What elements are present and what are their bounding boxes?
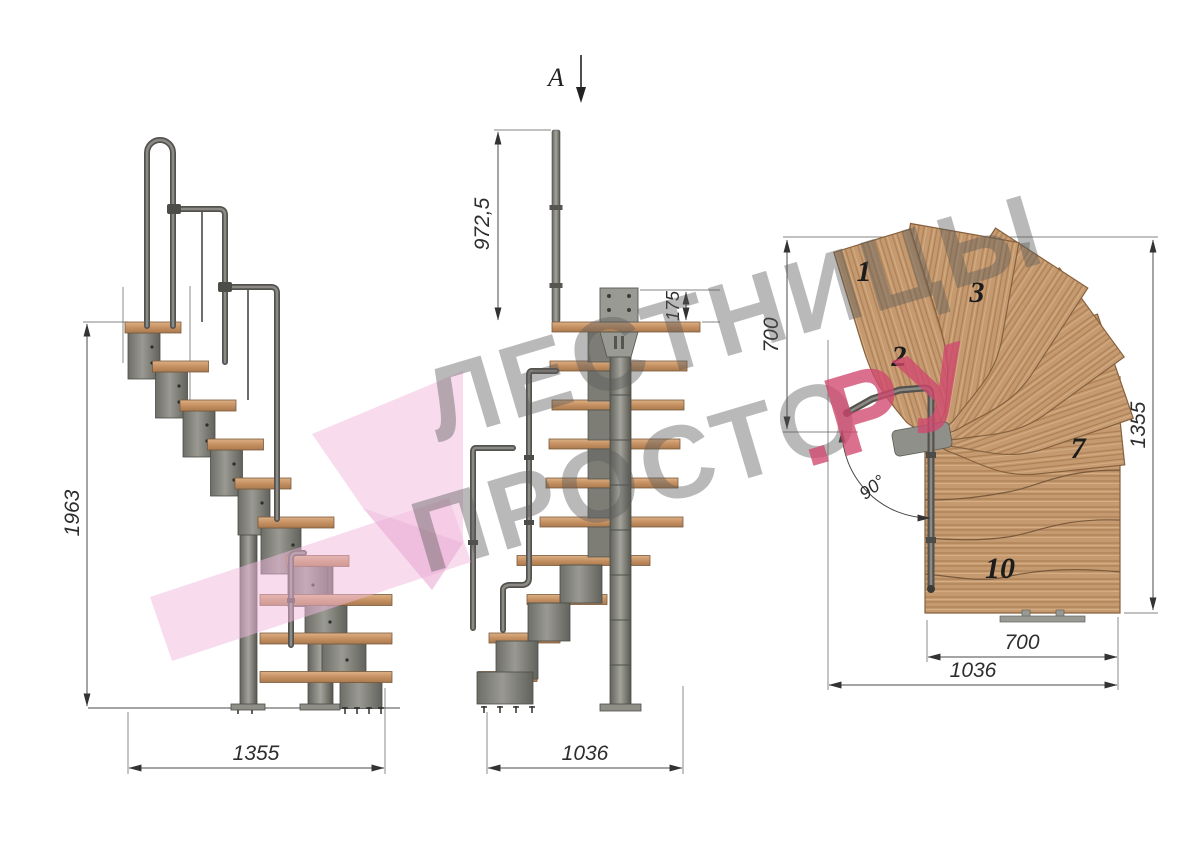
drawing-canvas: 1963 <box>0 0 1200 849</box>
dim-front-rail-height-label: 972,5 <box>471 197 494 250</box>
plan-step-label-7: 7 <box>1071 432 1087 465</box>
dim-plan-bottom-outer-label: 1036 <box>950 659 997 682</box>
front-newel-pole <box>550 130 563 322</box>
dim-plan-bottom-outer: 1036 <box>829 659 1117 685</box>
dim-side-height-label: 1963 <box>61 489 84 536</box>
dim-front-rail-height: 972,5 <box>471 130 551 320</box>
dim-plan-bottom-inner-label: 700 <box>1004 631 1039 654</box>
dim-plan-right: 1355 <box>1124 240 1158 613</box>
dim-side-height: 1963 <box>61 324 87 706</box>
section-arrow: A <box>546 55 586 103</box>
staircase-technical-drawing: 1963 <box>0 0 1200 849</box>
dim-side-width-label: 1355 <box>233 742 280 765</box>
section-label: A <box>546 63 564 92</box>
plan-step-label-10: 10 <box>985 552 1015 585</box>
dim-front-width-label: 1036 <box>562 742 609 765</box>
